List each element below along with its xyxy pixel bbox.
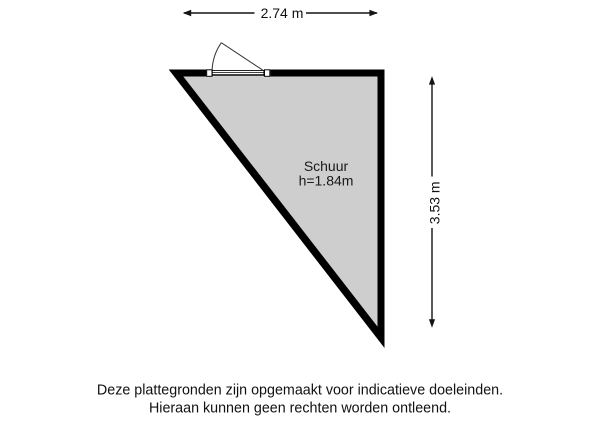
svg-text:2.74 m: 2.74 m bbox=[261, 5, 304, 21]
svg-text:Deze plattegronden zijn opgema: Deze plattegronden zijn opgemaakt voor i… bbox=[97, 383, 503, 399]
svg-text:3.53 m: 3.53 m bbox=[427, 181, 443, 224]
svg-text:Hieraan kunnen geen rechten wo: Hieraan kunnen geen rechten worden ontle… bbox=[149, 400, 451, 416]
svg-text:h=1.84m: h=1.84m bbox=[299, 172, 354, 188]
